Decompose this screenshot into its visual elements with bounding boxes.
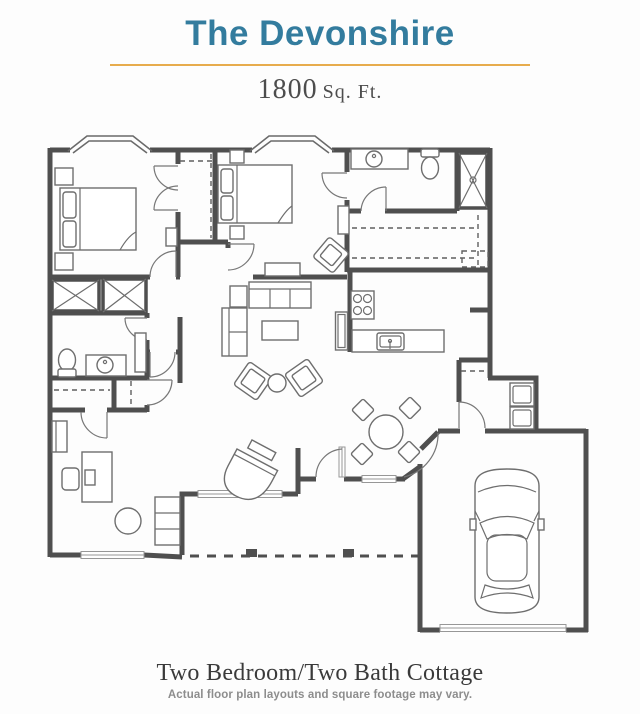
armchair-icon — [313, 237, 350, 274]
kitchen-sink-icon — [377, 333, 404, 350]
porch-post — [246, 549, 257, 557]
linen-cabinet-icon — [135, 333, 146, 372]
washer-dryer-icon — [510, 383, 534, 429]
round-table-icon — [115, 508, 141, 534]
patio-line — [190, 549, 418, 557]
sqft-unit: Sq. Ft. — [323, 81, 383, 103]
master-bed-icon — [218, 165, 292, 223]
wardrobe-closet-1-icon — [52, 280, 99, 311]
header: The Devonshire 1800 Sq. Ft. — [0, 0, 640, 106]
bookshelf-icon — [155, 497, 180, 545]
toilet-icon — [421, 149, 439, 179]
dining-chair-icon — [399, 397, 422, 420]
mirror-icon — [166, 228, 177, 246]
pantry-shelf — [462, 251, 488, 267]
dining-chair-icon — [352, 399, 375, 422]
stove-icon — [351, 291, 374, 319]
desk-icon — [82, 452, 112, 502]
floor-plan-drawing — [0, 118, 640, 663]
nightstand-icon — [55, 253, 73, 270]
loveseat-icon — [222, 308, 247, 356]
disclaimer: Actual floor plan layouts and square foo… — [0, 689, 640, 701]
gold-divider — [110, 64, 530, 66]
porch-post — [343, 549, 354, 557]
dining-table-icon — [369, 415, 403, 449]
armchair-icon — [285, 359, 324, 398]
refrigerator-icon — [336, 312, 348, 350]
den-office — [52, 421, 180, 545]
living-room — [217, 282, 323, 508]
cabinet-icon — [52, 421, 67, 452]
dining-chair-icon — [398, 441, 421, 464]
desk-chair-icon — [62, 468, 79, 490]
car-icon — [470, 469, 544, 613]
floor-plan — [0, 118, 640, 663]
bay-window-master — [250, 136, 334, 153]
footer: Two Bedroom/Two Bath Cottage Actual floo… — [0, 660, 640, 701]
hall-bath-vanity-icon — [86, 355, 126, 376]
wardrobe-closet-2-icon — [103, 279, 146, 312]
dresser-icon — [265, 263, 300, 276]
square-footage: 1800 Sq. Ft. — [0, 74, 640, 106]
nightstand-icon — [55, 168, 73, 185]
plan-description: Two Bedroom/Two Bath Cottage — [0, 660, 640, 687]
dining-nook — [351, 397, 422, 466]
coffee-table-icon — [262, 321, 298, 340]
page-title: The Devonshire — [0, 0, 640, 54]
cabinet-icon — [338, 206, 349, 234]
bay-window-bedroom1 — [68, 136, 152, 153]
end-table-icon — [230, 286, 247, 307]
armchair-icon — [234, 362, 273, 401]
shower-icon — [459, 153, 487, 208]
bedroom1-bed-icon — [60, 188, 136, 250]
nightstand-icon — [230, 226, 244, 239]
round-side-table-icon — [268, 374, 286, 392]
master-bath-vanity-icon — [351, 149, 408, 169]
nightstand-icon — [230, 150, 244, 163]
sofa-icon — [249, 282, 311, 308]
dining-chair-icon — [351, 443, 374, 466]
toilet-icon — [58, 349, 76, 377]
sqft-value: 1800 — [258, 74, 318, 105]
